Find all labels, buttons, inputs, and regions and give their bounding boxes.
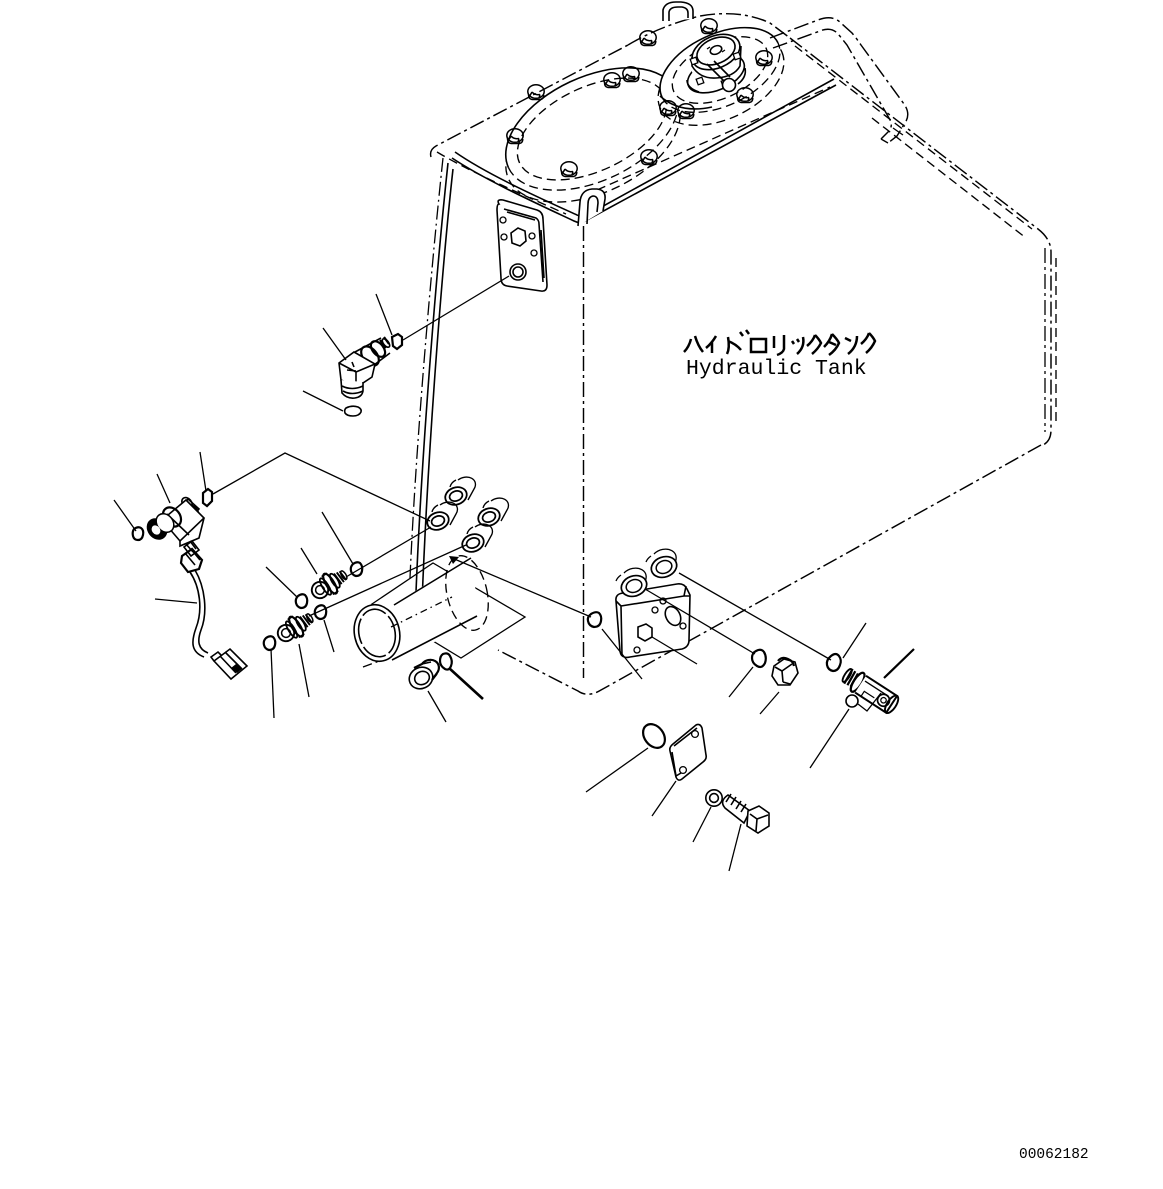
svg-text:Hydraulic Tank: Hydraulic Tank (686, 357, 867, 381)
svg-text:00062182: 00062182 (1019, 1147, 1089, 1163)
